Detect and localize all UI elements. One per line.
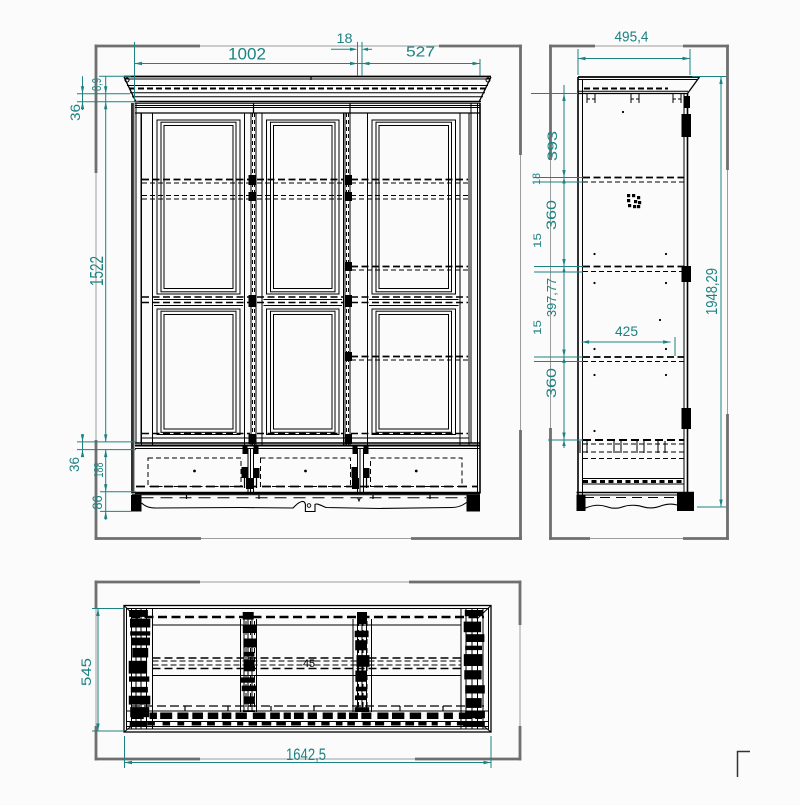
svg-text:86: 86 xyxy=(89,495,105,509)
svg-text:1642,5: 1642,5 xyxy=(286,745,326,764)
svg-text:545: 545 xyxy=(78,658,94,686)
svg-text:15: 15 xyxy=(532,320,544,335)
svg-text:393: 393 xyxy=(544,131,560,161)
svg-text:18: 18 xyxy=(337,30,353,46)
svg-text:45: 45 xyxy=(303,658,315,670)
svg-text:1522: 1522 xyxy=(87,256,107,286)
svg-text:18: 18 xyxy=(531,173,543,185)
svg-text:8,9: 8,9 xyxy=(89,78,104,91)
svg-text:360: 360 xyxy=(543,368,559,398)
svg-text:1948,29: 1948,29 xyxy=(704,268,721,315)
svg-text:397,77: 397,77 xyxy=(544,278,559,317)
svg-text:36: 36 xyxy=(67,104,83,121)
svg-text:360: 360 xyxy=(543,200,559,230)
svg-text:188: 188 xyxy=(91,463,106,478)
svg-text:425: 425 xyxy=(615,324,638,339)
svg-text:36: 36 xyxy=(66,457,82,472)
svg-text:527: 527 xyxy=(406,44,435,61)
svg-text:1002: 1002 xyxy=(228,44,266,63)
svg-text:15: 15 xyxy=(532,233,544,248)
svg-text:495,4: 495,4 xyxy=(615,29,649,46)
